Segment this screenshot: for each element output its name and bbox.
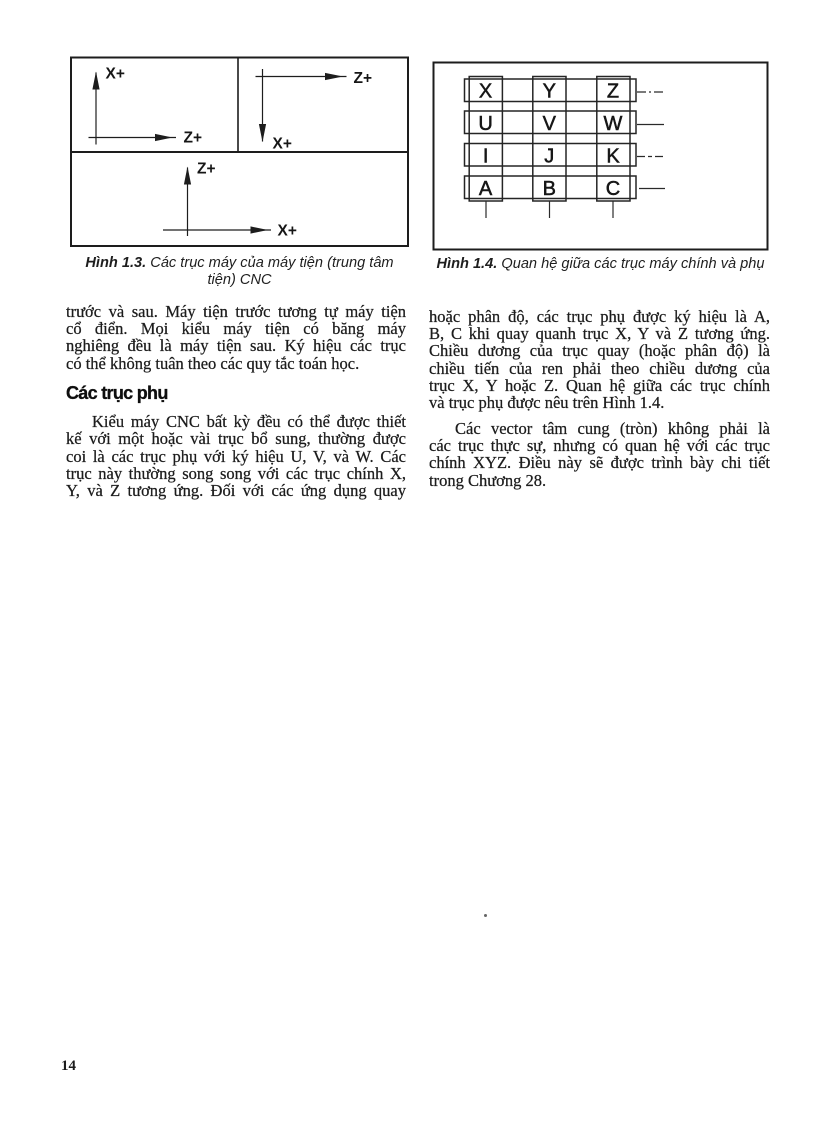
svg-text:K: K — [606, 145, 620, 167]
svg-text:X: X — [479, 81, 492, 103]
svg-text:Y: Y — [543, 81, 556, 103]
svg-text:Z+: Z+ — [184, 130, 203, 147]
svg-text:X+: X+ — [106, 66, 125, 83]
svg-text:J: J — [544, 145, 554, 167]
svg-text:Z: Z — [607, 81, 619, 103]
svg-text:I: I — [483, 145, 489, 167]
svg-text:U: U — [478, 113, 492, 135]
svg-text:X+: X+ — [278, 223, 297, 240]
svg-text:Z+: Z+ — [197, 161, 216, 178]
svg-text:C: C — [606, 178, 620, 200]
svg-text:X+: X+ — [273, 136, 292, 153]
svg-text:Z+: Z+ — [354, 70, 373, 87]
svg-text:B: B — [543, 178, 556, 200]
svg-text:V: V — [543, 113, 557, 135]
svg-text:A: A — [479, 178, 493, 200]
svg-text:W: W — [604, 113, 623, 135]
